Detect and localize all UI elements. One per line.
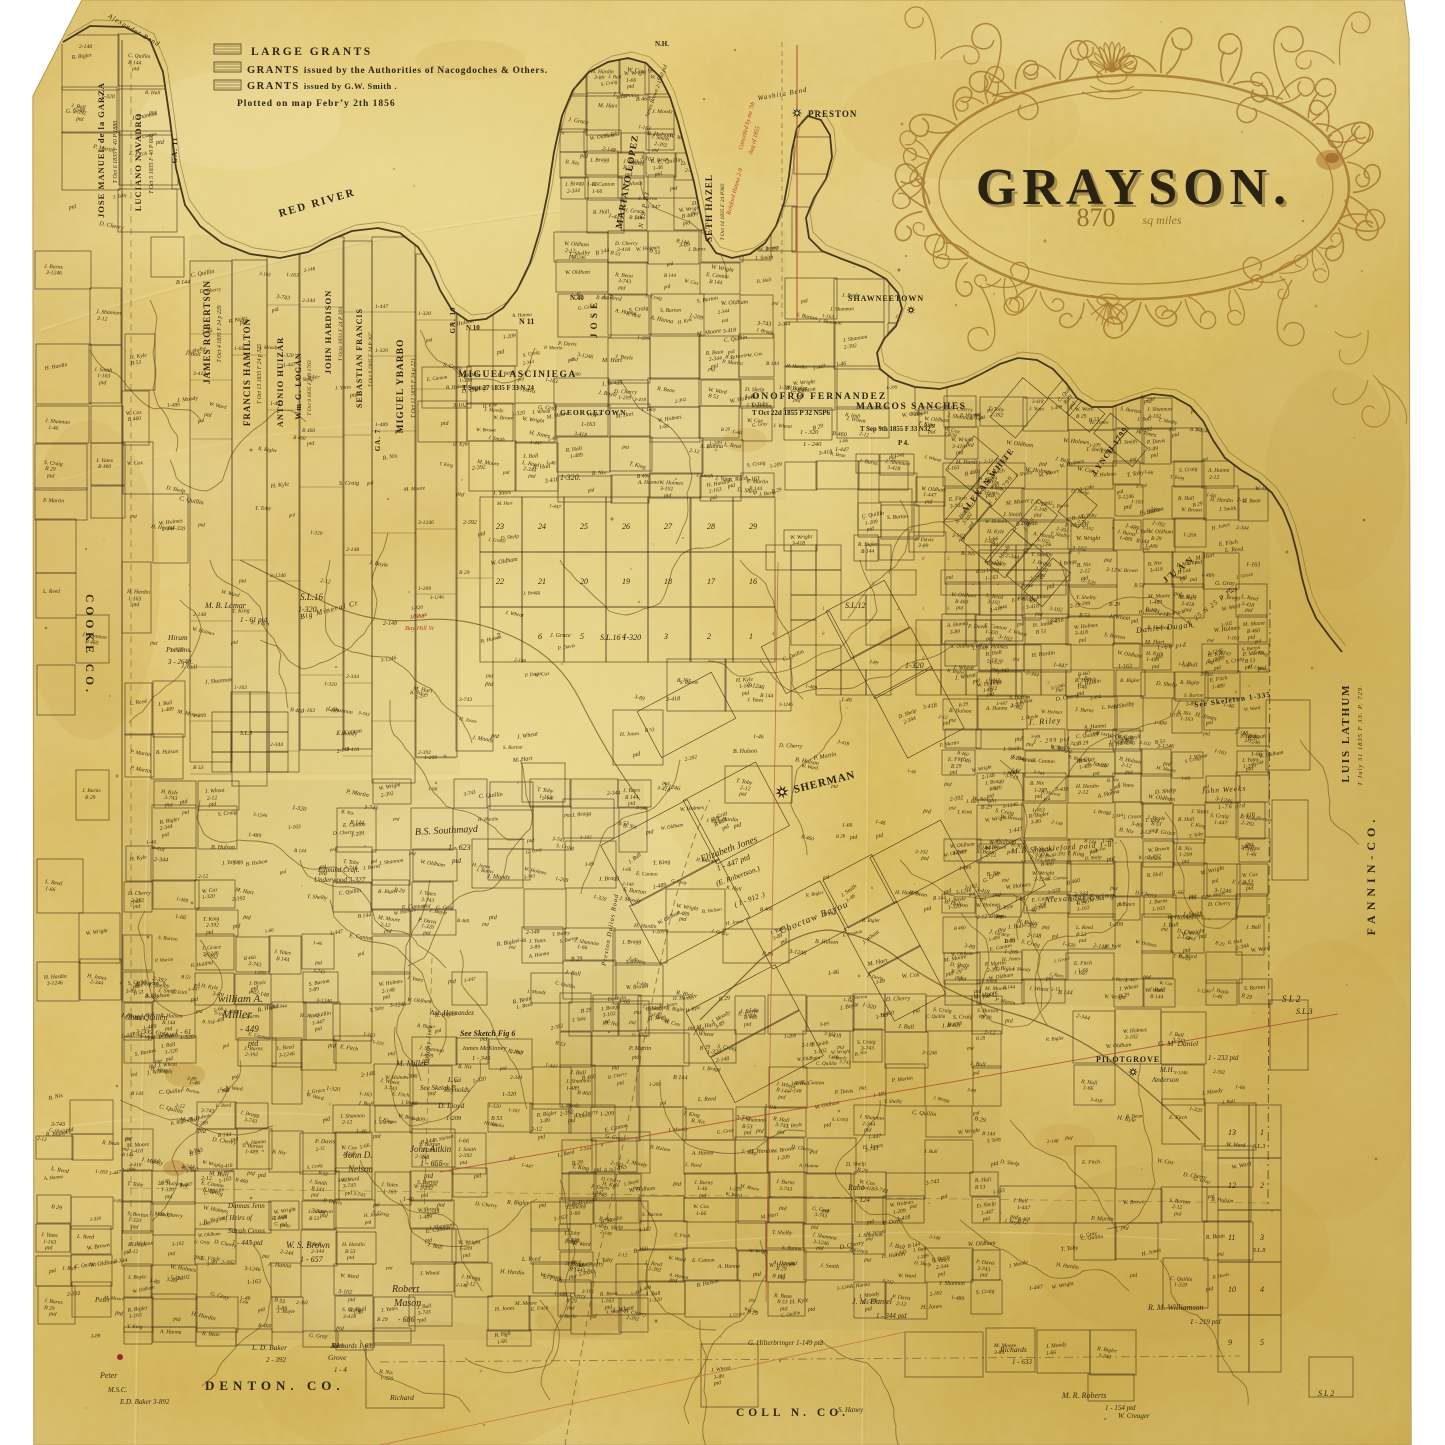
svg-text:JOSE MANUEL de la GARZA: JOSE MANUEL de la GARZA	[96, 82, 106, 218]
svg-text:Raho: Raho	[847, 1183, 865, 1192]
svg-text:2-148: 2-148	[79, 44, 92, 50]
svg-text:B 29: B 29	[85, 795, 96, 801]
svg-text:J. Shannon: J. Shannon	[830, 306, 854, 313]
svg-text:3-418: 3-418	[791, 541, 805, 547]
svg-text:11: 11	[1228, 1233, 1235, 1242]
svg-text:1 - 240: 1 - 240	[803, 441, 822, 448]
svg-text:P. Martin: P. Martin	[42, 498, 64, 504]
svg-text:B 460: B 460	[98, 464, 111, 470]
svg-text:1 - 4: 1 - 4	[334, 1366, 347, 1374]
svg-text:3: 3	[1259, 1233, 1264, 1242]
svg-text:1 - 623: 1 - 623	[448, 843, 471, 852]
svg-text:ptd: ptd	[1120, 1225, 1129, 1232]
svg-text:T Sep 9th 1855 F 33 N32: T Sep 9th 1855 F 33 N32	[860, 426, 931, 433]
svg-text:3-418: 3-418	[665, 696, 681, 703]
svg-text:1 - 320: 1 - 320	[800, 429, 819, 436]
svg-text:N.H.: N.H.	[655, 40, 669, 48]
svg-text:13: 13	[1228, 1128, 1236, 1137]
svg-text:T Oct 14 1835 F 24 P383: T Oct 14 1835 F 24 P383	[720, 183, 726, 240]
svg-text:1 - 633: 1 - 633	[1012, 1358, 1032, 1366]
svg-text:24: 24	[538, 522, 546, 531]
svg-text:1-46: 1-46	[836, 361, 847, 368]
svg-text:E. Fitch: E. Fitch	[1168, 1115, 1187, 1121]
svg-text:J. Ball: J. Ball	[1013, 1198, 1028, 1205]
svg-text:23: 23	[496, 522, 504, 531]
svg-text:W. Ward: W. Ward	[1226, 1142, 1246, 1149]
svg-text:Sarah Cross: Sarah Cross	[228, 1226, 265, 1235]
svg-text:D. Lloyd: D. Lloyd	[437, 1101, 465, 1110]
svg-text:1-209: 1-209	[446, 1115, 462, 1122]
svg-text:12: 12	[1228, 1181, 1236, 1190]
svg-text:10: 10	[1228, 1285, 1236, 1294]
svg-text:E.D. Baker 3-892: E.D. Baker 3-892	[119, 1398, 170, 1406]
svg-text:ptd: ptd	[1173, 1211, 1182, 1218]
svg-text:B 29: B 29	[45, 466, 56, 473]
svg-text:Edmund Craft.: Edmund Craft.	[317, 866, 360, 874]
svg-text:1-447: 1-447	[923, 492, 937, 499]
svg-text:John: John	[412, 613, 425, 620]
svg-text:ptd: ptd	[712, 1380, 721, 1387]
svg-text:PILOTGROVE: PILOTGROVE	[1096, 1055, 1160, 1064]
svg-text:- 306: - 306	[404, 1073, 418, 1080]
svg-text:1: 1	[922, 607, 925, 612]
svg-text:JOHN HARDISON: JOHN HARDISON	[323, 290, 333, 375]
svg-text:ptd: ptd	[849, 835, 858, 841]
svg-text:18: 18	[664, 577, 672, 586]
svg-text:Mason: Mason	[393, 1298, 421, 1309]
svg-text:R. Bean: R. Bean	[1125, 1113, 1143, 1120]
svg-text:Reynolds: Reynolds	[443, 1086, 470, 1094]
svg-text:B. Hulson: B. Hulson	[733, 749, 757, 755]
svg-text:ptd: ptd	[131, 602, 140, 608]
svg-text:of Heirs of: of Heirs of	[222, 1214, 253, 1222]
svg-text:1-209: 1-209	[886, 386, 898, 391]
svg-text:2: 2	[707, 632, 711, 641]
svg-text:J O S E: J O S E	[589, 302, 599, 338]
svg-text:3: 3	[663, 632, 668, 641]
svg-text:M.H.: M.H.	[1159, 1066, 1175, 1074]
svg-text:ptd: ptd	[247, 1039, 259, 1048]
svg-text:W. Cox: W. Cox	[127, 460, 144, 467]
svg-text:- 686 -: - 686 -	[398, 1315, 420, 1324]
svg-text:ptd: ptd	[131, 66, 140, 72]
svg-text:J. Grace: J. Grace	[550, 633, 571, 639]
svg-text:B 29: B 29	[459, 570, 470, 576]
svg-text:3-743: 3-743	[50, 1121, 65, 1128]
svg-text:ptd: ptd	[48, 1311, 57, 1318]
svg-text:DENTON. CO.: DENTON. CO.	[205, 1378, 345, 1393]
svg-text:sq miles: sq miles	[1143, 213, 1182, 227]
svg-text:B. Hulson: B. Hulson	[156, 749, 179, 756]
svg-text:1-163: 1-163	[95, 1169, 108, 1176]
svg-text:R. Bigler: R. Bigler	[45, 1131, 68, 1138]
svg-text:28: 28	[707, 522, 715, 531]
svg-text:ptd: ptd	[423, 1172, 433, 1180]
svg-text:ptd: ptd	[800, 298, 809, 305]
svg-text:3-1246: 3-1246	[779, 703, 793, 708]
svg-text:ptd: ptd	[46, 473, 55, 480]
svg-text:L. Reed: L. Reed	[76, 1234, 94, 1241]
svg-text:ptd: ptd	[75, 116, 84, 123]
svg-text:ptd: ptd	[502, 471, 510, 476]
svg-text:2-392: 2-392	[463, 520, 477, 526]
svg-text:FRANCIS HAMILTON: FRANCIS HAMILTON	[242, 318, 252, 426]
svg-text:M.S.C.: M.S.C.	[107, 1386, 128, 1394]
svg-text:1-447: 1-447	[530, 441, 542, 447]
svg-text:Nelson: Nelson	[347, 1164, 374, 1174]
svg-text:GEORGETOWN: GEORGETOWN	[560, 408, 627, 417]
svg-text:W. Brown: W. Brown	[476, 427, 496, 434]
svg-text:ptd: ptd	[47, 1268, 56, 1275]
svg-text:N 10: N 10	[466, 324, 480, 332]
svg-text:ptd: ptd	[496, 349, 505, 356]
svg-text:ptd: ptd	[451, 857, 461, 865]
svg-text:Peter: Peter	[94, 1296, 110, 1304]
svg-text:GA. 11: GA. 11	[171, 137, 179, 164]
svg-text:Anderson: Anderson	[1151, 1076, 1179, 1084]
svg-text:4: 4	[1260, 1285, 1264, 1294]
svg-text:1-447: 1-447	[835, 447, 850, 454]
svg-text:John Aitkin: John Aitkin	[410, 1144, 452, 1154]
svg-text:GA. 7: GA. 7	[374, 429, 382, 452]
svg-text:S.L.12: S.L.12	[845, 601, 865, 610]
svg-text:Underwood 3-327: Underwood 3-327	[314, 876, 366, 884]
svg-text:GRAYSON.: GRAYSON.	[976, 159, 1292, 216]
svg-text:T Oct 13 1835 F 24 p 325: T Oct 13 1835 F 24 p 325	[256, 344, 263, 404]
svg-text:E. Fitch: E. Fitch	[1081, 1159, 1100, 1166]
svg-text:SETH HAZEL: SETH HAZEL	[704, 174, 714, 242]
svg-text:T Sept 27 1835 F 33 N 24: T Sept 27 1835 F 33 N 24	[462, 385, 535, 392]
svg-text:2-392: 2-392	[1213, 1069, 1226, 1076]
svg-text:Bay Hill Sr: Bay Hill Sr	[405, 625, 435, 632]
svg-text:T Oct 22d 1855 P 32 N5P6: T Oct 22d 1855 P 32 N5P6	[752, 409, 831, 417]
svg-text:1-46: 1-46	[48, 425, 59, 432]
svg-text:S.L.8: S.L.8	[1253, 1248, 1265, 1254]
svg-text:C. Quillin: C. Quillin	[128, 53, 151, 60]
svg-text:1-66: 1-66	[842, 823, 853, 829]
svg-text:1-46: 1-46	[546, 459, 556, 467]
svg-text:1 - 124: 1 - 124	[850, 1196, 870, 1204]
svg-text:B 29: B 29	[836, 834, 846, 840]
svg-text:B 144: B 144	[760, 693, 774, 699]
svg-text:John: John	[330, 1341, 345, 1350]
svg-text:20: 20	[580, 577, 588, 586]
svg-text:ptd: ptd	[476, 531, 485, 538]
svg-text:1-46: 1-46	[753, 733, 764, 741]
svg-text:ptd: ptd	[44, 1245, 53, 1252]
svg-text:N 11: N 11	[519, 317, 534, 326]
svg-text:22: 22	[496, 577, 504, 586]
svg-text:P. Martin: P. Martin	[1090, 1216, 1114, 1223]
svg-text:M. Hart: M. Hart	[496, 501, 514, 507]
svg-text:1: 1	[1260, 1128, 1264, 1137]
svg-text:1-209: 1-209	[652, 929, 665, 935]
svg-text:Wm G. LOGAN: Wm G. LOGAN	[294, 352, 303, 419]
svg-text:S L 2: S L 2	[1318, 1389, 1334, 1398]
svg-text:S. Burton: S. Burton	[503, 745, 523, 751]
svg-text:ptd: ptd	[1004, 1018, 1013, 1025]
svg-text:Hiram: Hiram	[167, 633, 188, 642]
svg-text:H. Hardin: H. Hardin	[894, 890, 918, 896]
svg-text:ptd: ptd	[1207, 1193, 1215, 1200]
svg-text:Peter: Peter	[99, 1371, 118, 1380]
svg-text:T Oct 9 1835 F AO 1763: T Oct 9 1835 F AO 1763	[307, 360, 313, 416]
svg-text:ptd: ptd	[645, 829, 655, 836]
svg-text:2-12: 2-12	[97, 316, 108, 323]
svg-text:1 - 657: 1 - 657	[300, 1255, 324, 1264]
svg-text:COLL N. CO.: COLL N. CO.	[736, 1407, 849, 1419]
svg-text:william A.: william A.	[218, 993, 263, 1005]
svg-text:27: 27	[664, 522, 673, 531]
svg-text:GRANTS issued by G.W. Smith .: GRANTS issued by G.W. Smith .	[247, 81, 397, 92]
svg-text:H. Jones: H. Jones	[619, 731, 640, 738]
svg-text:29: 29	[749, 522, 757, 531]
svg-text:2: 2	[1260, 1181, 1264, 1190]
svg-text:17: 17	[707, 577, 716, 586]
svg-text:S. Burton: S. Burton	[887, 514, 909, 521]
svg-text:Richards: Richards	[999, 1345, 1027, 1354]
svg-text:2-392: 2-392	[67, 1291, 81, 1298]
svg-text:COOKE CO.: COOKE CO.	[83, 594, 95, 696]
svg-text:1: 1	[749, 632, 753, 641]
svg-text:J. Burns: J. Burns	[82, 788, 101, 794]
svg-text:ptd: ptd	[822, 875, 830, 881]
svg-text:S.L.3: S.L.3	[1296, 1007, 1312, 1016]
svg-text:B. Hulson: B. Hulson	[815, 939, 838, 946]
svg-text:1-447: 1-447	[1017, 1205, 1030, 1211]
svg-text:T July 31 1835 F 33. P. 729.: T July 31 1835 F 33. P. 729.	[1357, 684, 1364, 785]
svg-text:1-46: 1-46	[841, 696, 852, 704]
svg-text:James McKinney: James McKinney	[462, 1045, 507, 1052]
svg-text:Dunnas Jenn: Dunnas Jenn	[227, 1202, 265, 1210]
svg-text:1-320: 1-320	[905, 661, 924, 670]
svg-text:M. R. Roberts: M. R. Roberts	[1061, 1391, 1106, 1400]
svg-text:1 - 219 ptd: 1 - 219 ptd	[1190, 1318, 1221, 1326]
svg-text:LUCIANO NAVADRO: LUCIANO NAVADRO	[133, 113, 143, 212]
svg-text:R. Bigler: R. Bigler	[861, 919, 880, 924]
svg-text:3-89: 3-89	[917, 543, 929, 549]
svg-text:6: 6	[538, 632, 542, 641]
svg-text:2-148: 2-148	[1047, 1139, 1059, 1145]
svg-text:ANTONIO HUIZAR: ANTONIO HUIZAR	[275, 337, 285, 428]
svg-text:ptd: ptd	[1216, 1251, 1225, 1258]
svg-text:GA. 10: GA. 10	[449, 307, 457, 334]
svg-text:W. Creager: W. Creager	[1118, 1412, 1150, 1420]
svg-text:ptd: ptd	[98, 380, 107, 386]
svg-text:B 144: B 144	[861, 549, 875, 555]
svg-text:MARCOS SANCHES: MARCOS SANCHES	[856, 402, 966, 412]
svg-text:3-743: 3-743	[458, 697, 472, 703]
svg-text:L.C.: L.C.	[447, 1076, 460, 1084]
svg-text:T Oct 4 1835 F 24 p 229: T Oct 4 1835 F 24 p 229	[216, 305, 223, 362]
svg-text:1 - 61: 1 - 61	[175, 1028, 191, 1036]
svg-text:J. Ball: J. Ball	[523, 453, 539, 460]
svg-text:5: 5	[1260, 1338, 1264, 1347]
svg-text:ptd: ptd	[155, 139, 165, 146]
svg-text:B 144: B 144	[176, 279, 190, 286]
svg-text:S. Burton: S. Burton	[680, 681, 699, 686]
svg-text:870: 870	[1077, 203, 1116, 232]
svg-text:B 460: B 460	[760, 906, 773, 913]
svg-text:SEBASTIAN FRANCIS: SEBASTIAN FRANCIS	[355, 308, 364, 408]
svg-text:JAMES ROBERTSON: JAMES ROBERTSON	[202, 280, 212, 384]
svg-text:MIGUEL ASCINIEGA: MIGUEL ASCINIEGA	[458, 370, 577, 380]
svg-text:1-320: 1-320	[1174, 1282, 1188, 1289]
svg-text:1 - 233 ptd: 1 - 233 ptd	[1208, 1054, 1239, 1062]
svg-text:P 4.: P 4.	[898, 439, 909, 447]
svg-text:1-66: 1-66	[1046, 1350, 1057, 1357]
svg-text:26: 26	[622, 522, 630, 531]
svg-text:ONOFRO FERNANDEZ: ONOFRO FERNANDEZ	[752, 392, 887, 402]
svg-text:3-1246: 3-1246	[45, 270, 62, 277]
svg-text:G. Mº Daniel: G. Mº Daniel	[1158, 1039, 1198, 1048]
svg-text:T Oct 12 1835 F 24 p 221: T Oct 12 1835 F 24 p 221	[410, 358, 417, 418]
svg-text:1-66: 1-66	[1083, 1085, 1094, 1092]
svg-text:Robert: Robert	[391, 1284, 419, 1295]
svg-text:R. Hall: R. Hall	[144, 90, 161, 96]
svg-text:T Oct 6 1835 F 40 P 1880: T Oct 6 1835 F 40 P 1880	[112, 121, 119, 184]
svg-text:GRANTS issued by the Authoriti: GRANTS issued by the Authorities of Naco…	[247, 65, 548, 76]
svg-text:John D.: John D.	[344, 1150, 373, 1160]
svg-text:1-46: 1-46	[827, 969, 840, 977]
svg-text:Grove: Grove	[328, 1353, 347, 1362]
svg-text:Ant. Hernandez: Ant. Hernandez	[429, 1009, 474, 1017]
svg-text:ptd: ptd	[888, 455, 896, 461]
svg-text:T Oct 9 1835 F 24 P 307: T Oct 9 1835 F 24 P 307	[367, 332, 374, 387]
svg-text:ptd: ptd	[67, 204, 76, 211]
svg-text:9: 9	[1228, 1338, 1232, 1347]
svg-text:1-163: 1-163	[97, 373, 111, 380]
svg-text:J. M. Daniel: J. M. Daniel	[852, 1297, 893, 1306]
svg-text:ptd: ptd	[1064, 1135, 1073, 1142]
svg-text:S L 2: S L 2	[1282, 994, 1301, 1004]
svg-text:MIGUEL YBARBO: MIGUEL YBARBO	[396, 339, 406, 434]
svg-text:5: 5	[580, 632, 584, 641]
svg-text:M. B. Lamar: M. B. Lamar	[204, 601, 247, 610]
svg-text:1: 1	[822, 607, 825, 612]
svg-text:2-12: 2-12	[1172, 1204, 1183, 1211]
svg-text:See Sketch Fig 6: See Sketch Fig 6	[460, 1029, 515, 1038]
svg-text:Plotted on map Febr’y 2th 185: Plotted on map Febr’y 2th 1856	[237, 99, 396, 109]
svg-text:Chas Quillen: Chas Quillen	[125, 1013, 167, 1022]
svg-text:L. D. Baker: L. D. Baker	[251, 1343, 287, 1352]
svg-text:ptd: ptd	[485, 673, 494, 680]
svg-text:25: 25	[580, 522, 588, 531]
svg-text:LUIS LATHUM: LUIS LATHUM	[1340, 683, 1352, 782]
svg-text:3-102: 3-102	[1124, 1034, 1139, 1041]
svg-text:LARGE GRANTS: LARGE GRANTS	[251, 46, 373, 58]
svg-text:ptd: ptd	[1205, 1286, 1214, 1293]
svg-text:B 460: B 460	[128, 416, 142, 423]
svg-text:1 - 655: 1 - 655	[420, 1159, 443, 1168]
svg-text:Miller: Miller	[221, 1007, 252, 1021]
svg-text:3 - 2648.: 3 - 2648.	[167, 658, 193, 666]
svg-text:D. Cherry: D. Cherry	[778, 743, 803, 750]
svg-text:FANNIN-CO.: FANNIN-CO.	[1364, 815, 1378, 936]
svg-text:N.40: N.40	[570, 294, 584, 302]
svg-text:PRESTON: PRESTON	[808, 109, 857, 119]
svg-text:19: 19	[622, 577, 630, 586]
svg-text:1 - 344 ptd: 1 - 344 ptd	[876, 1312, 907, 1320]
svg-text:1 - 445 ptd: 1 - 445 ptd	[232, 1239, 263, 1247]
svg-text:16: 16	[749, 577, 757, 586]
svg-text:SHAWNEETOWN: SHAWNEETOWN	[848, 294, 924, 303]
svg-text:3-1246: 3-1246	[46, 980, 63, 987]
svg-text:2 - 392: 2 - 392	[266, 1356, 286, 1364]
svg-text:S.L.3: S.L.3	[1253, 1144, 1265, 1150]
svg-text:T Oct 5 1835 F 40 P 668: T Oct 5 1835 F 40 P 668	[148, 134, 155, 194]
svg-text:S.L.16 1-320: S.L.16 1-320	[600, 633, 641, 642]
svg-text:T Octo 1833 F 24 P 393: T Octo 1833 F 24 P 393	[338, 307, 344, 361]
svg-text:3-102: 3-102	[914, 849, 928, 856]
svg-text:1 - 154 ptd: 1 - 154 ptd	[1105, 1404, 1136, 1412]
svg-text:R. M. Williamson: R. M. Williamson	[1147, 1303, 1204, 1312]
svg-text:1 - 61 ptd: 1 - 61 ptd	[240, 616, 268, 624]
svg-text:Richard: Richard	[389, 1393, 414, 1402]
svg-text:2-12: 2-12	[37, 1136, 47, 1143]
svg-text:- 449: - 449	[240, 1024, 259, 1034]
svg-text:L. Reed: L. Reed	[42, 589, 60, 595]
svg-text:Persons.: Persons.	[165, 645, 192, 654]
svg-text:B 53: B 53	[645, 727, 656, 734]
svg-text:G. Gray: G. Gray	[538, 405, 558, 412]
svg-text:W. Brown: W. Brown	[1123, 1199, 1145, 1206]
svg-text:1 - 345: 1 - 345	[472, 1055, 491, 1062]
svg-text:W. S. Brown: W. S. Brown	[286, 1240, 330, 1250]
svg-text:H. Hardin: H. Hardin	[126, 589, 150, 596]
svg-text:G. Hilterbringer 1-149 ptd: G. Hilterbringer 1-149 ptd	[748, 1339, 824, 1347]
svg-text:21: 21	[538, 577, 546, 586]
svg-text:3-89: 3-89	[91, 1333, 101, 1340]
svg-text:3-89: 3-89	[113, 1199, 123, 1205]
svg-text:ptd: ptd	[1129, 1273, 1137, 1279]
